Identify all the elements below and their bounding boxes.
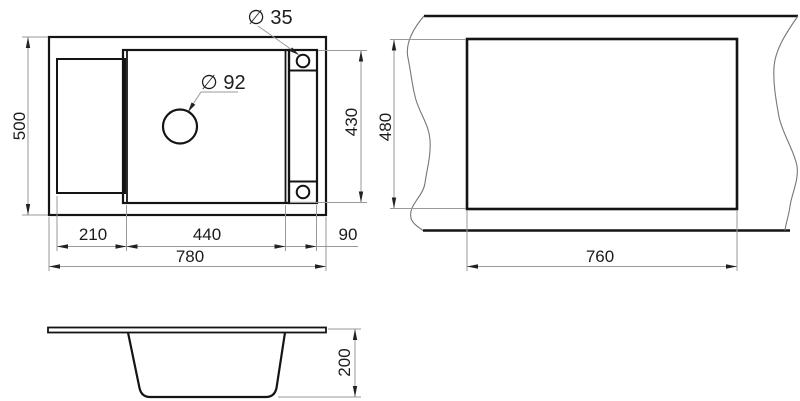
dim-label-cutout-height: 480: [376, 113, 395, 141]
dim-label-bowl-width: 440: [193, 225, 221, 244]
dim-label-drain-diameter: ∅ 92: [200, 72, 245, 94]
side-view: [48, 328, 326, 398]
leader-faucet-hole-diameter: ∅ 35: [247, 7, 299, 55]
dim-label-bowl-depth: 430: [342, 108, 361, 136]
faucet-deck: [289, 50, 317, 203]
dim-label-faucet-deck-width: 90: [339, 225, 358, 244]
dim-label-drainboard-width: 210: [79, 225, 107, 244]
dim-label-overall-depth: 500: [10, 112, 29, 140]
sink-outer-rim: [49, 37, 326, 215]
dim-overall-depth: 500: [10, 37, 48, 215]
break-line-left: [407, 16, 430, 231]
dim-cutout-height: 480: [376, 40, 466, 209]
dim-label-overall-width: 780: [176, 247, 204, 266]
sink-technical-drawing: 500 210 440 90 780 430 ∅ 9: [0, 0, 800, 401]
sink-flange-profile: [48, 328, 326, 333]
drainboard: [57, 59, 125, 193]
faucet-hole-bottom: [297, 186, 310, 199]
drain-hole: [163, 110, 197, 144]
faucet-hole-top: [297, 55, 310, 68]
dim-bowl-depth: 430: [290, 51, 367, 203]
technical-drawing-page: 500 210 440 90 780 430 ∅ 9: [0, 0, 800, 401]
cutout-view: [407, 16, 798, 231]
dim-chain-widths: 210 440 90: [57, 196, 358, 251]
dim-bowl-height: 200: [278, 329, 361, 397]
dim-label-bowl-height: 200: [335, 348, 354, 376]
cutout-rectangle: [467, 39, 737, 209]
dim-label-cutout-width: 760: [586, 247, 614, 266]
dim-label-faucet-hole-diameter: ∅ 35: [247, 7, 292, 29]
top-view: [49, 37, 326, 215]
leader-drain-diameter: ∅ 92: [188, 72, 246, 112]
dim-cutout-width: 760: [467, 210, 737, 271]
bowl-profile: [128, 333, 285, 398]
break-line-right: [774, 16, 798, 231]
